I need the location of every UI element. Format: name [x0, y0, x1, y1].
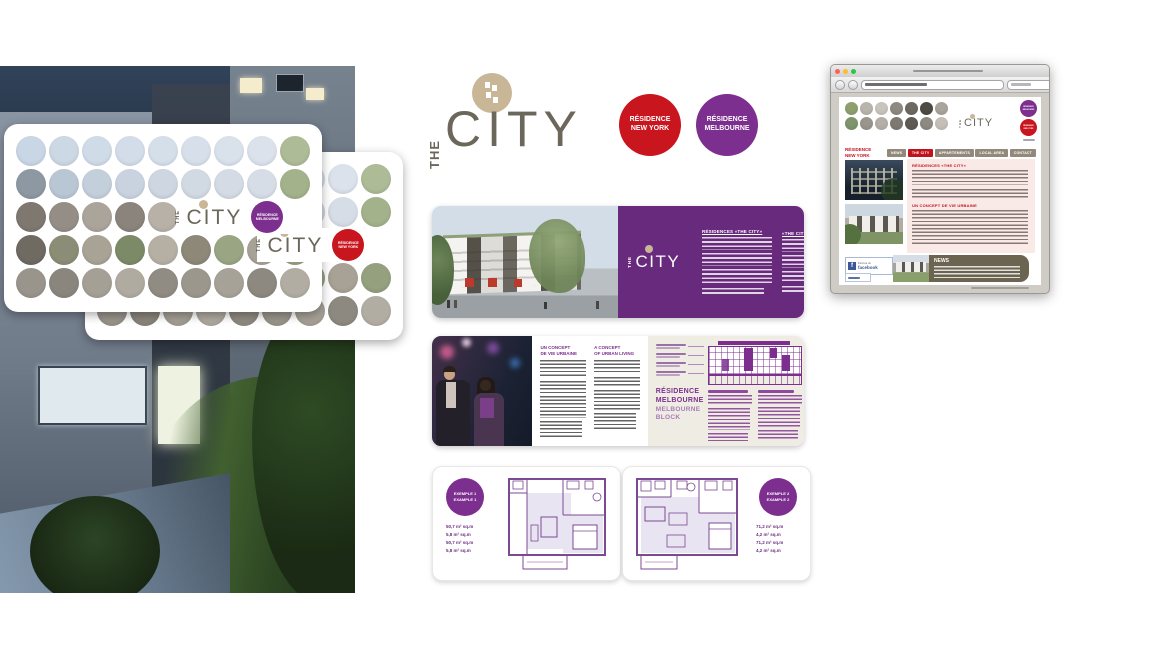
floorplan-drawing — [501, 473, 613, 575]
facebook-like-button[interactable] — [845, 273, 871, 282]
forward-button[interactable] — [848, 80, 858, 90]
building-rendering — [432, 206, 618, 318]
logo-the: THE — [257, 238, 263, 252]
text-lines — [594, 377, 640, 387]
column-heading: «THE CITY» RESIDENCES — [782, 231, 804, 236]
floor-label — [656, 344, 704, 349]
nav-tab-news[interactable]: NEWS — [887, 149, 906, 157]
text-lines — [540, 381, 586, 393]
text-lines — [594, 360, 640, 374]
spec-row: 71,2 m² sq.m — [756, 540, 783, 545]
bokeh-light — [510, 358, 520, 368]
photo-circle — [181, 235, 211, 265]
site-heading-1: RÉSIDENCES «THE CITY» — [912, 163, 1030, 168]
card-logo-block: THE CITY RÉSIDENCEMELBOURNE — [176, 200, 310, 234]
floorplan-card-1: EXEMPLE 1EXAMPLE 1 50,7 m² sq.m 5,8 m² s… — [432, 466, 621, 581]
logo-city: CITY — [445, 104, 583, 154]
logo-gold-circle-icon — [970, 114, 975, 119]
concept-column-fr: UN CONCEPT DE VIE URBAINE — [540, 345, 586, 437]
close-button[interactable] — [835, 69, 840, 74]
photo-circle — [361, 197, 391, 227]
text-lines — [912, 210, 1028, 244]
photo-circle — [935, 102, 948, 115]
photo-circle — [49, 202, 79, 232]
text-lines — [702, 253, 772, 266]
photo-circle — [890, 102, 903, 115]
purple-intro-panel: THE CITY RÉSIDENCES «THE CITY» «THE CITY… — [618, 206, 804, 318]
photo-circle — [920, 117, 933, 130]
photo-circle — [82, 202, 112, 232]
facebook-icon: f — [848, 262, 856, 270]
text-lines — [702, 288, 764, 295]
window-title-text — [913, 70, 983, 73]
melbourne-panel: RÉSIDENCEMELBOURNE MELBOURNEBLOCK — [648, 336, 804, 446]
photo-circle — [328, 296, 358, 326]
photo-circle — [214, 268, 244, 298]
photo-circle — [82, 136, 112, 166]
card-residence-melbourne: THE CITY RÉSIDENCEMELBOURNE — [4, 124, 322, 312]
site-content-panel: RÉSIDENCES «THE CITY» UN CONCEPT DE VIE … — [907, 159, 1035, 253]
photo-circle — [845, 102, 858, 115]
brochure-inner-spread: UN CONCEPT DE VIE URBAINE A CONCEPT OF U… — [432, 336, 804, 446]
photo-circle — [920, 102, 933, 115]
news-box[interactable]: NEWS — [929, 255, 1029, 282]
badge-melbourne: RÉSIDENCEMELBOURNE — [696, 94, 758, 156]
photo-circle — [328, 164, 358, 194]
presentation-board: THE CITY RÉSIDENCENEW YORK THE CITY RÉSI… — [0, 0, 1170, 658]
search-field[interactable] — [1007, 80, 1050, 90]
text-lines — [758, 430, 798, 439]
logo-city: CITY — [187, 207, 243, 228]
photo-circle — [875, 102, 888, 115]
melbourne-title: RÉSIDENCEMELBOURNE MELBOURNEBLOCK — [656, 388, 704, 422]
back-button[interactable] — [835, 80, 845, 90]
photo-circle — [860, 102, 873, 115]
man-hair — [443, 366, 456, 372]
elevation-filled-windows — [722, 359, 729, 371]
spec-row: 5,8 m² sq.m — [446, 532, 473, 537]
news-thumbnail[interactable] — [893, 255, 929, 282]
example-badge: EXEMPLE 1EXAMPLE 1 — [446, 478, 484, 516]
floor-labels — [656, 344, 704, 380]
photo-circle — [875, 117, 888, 130]
spec-row: 4,2 m² sq.m — [756, 532, 783, 537]
floorplan-specs: 71,2 m² sq.m 4,2 m² sq.m 71,2 m² sq.m 4,… — [756, 524, 783, 556]
column-heading: RÉSIDENCES «THE CITY» — [702, 229, 772, 234]
site-image-day[interactable] — [845, 204, 903, 244]
man-shirt — [446, 382, 456, 408]
concept-column-en: A CONCEPT OF URBAN LIVING — [594, 345, 640, 437]
floorplan-card-2: EXEMPLE 2EXAMPLE 2 71,2 m² sq.m 4,2 m² s… — [622, 466, 811, 581]
text-lines — [540, 396, 586, 418]
bokeh-light — [487, 342, 499, 354]
photo-circle — [16, 136, 46, 166]
news-title: NEWS — [934, 258, 1024, 264]
site-header-circles — [845, 102, 948, 132]
text-lines — [540, 421, 581, 437]
window-light — [306, 88, 324, 100]
site-residence-title: RÉSIDENCENEW YORK — [845, 147, 871, 159]
site-lang-link[interactable] — [1023, 139, 1035, 141]
example-badge: EXEMPLE 2EXAMPLE 2 — [759, 478, 797, 516]
window-dark — [276, 74, 304, 92]
photo-circle — [115, 268, 145, 298]
elevation-filled-windows — [744, 348, 753, 371]
column-heading: UN CONCEPT DE VIE URBAINE — [540, 345, 586, 357]
logo-the: THE — [176, 210, 182, 224]
photo-circle — [49, 235, 79, 265]
bokeh-light — [440, 345, 454, 359]
photo-circle — [905, 117, 918, 130]
floorplan-specs: 50,7 m² sq.m 5,8 m² sq.m 50,7 m² sq.m 5,… — [446, 524, 473, 556]
logo-city: CITY — [964, 118, 993, 129]
spec-column-en — [758, 390, 802, 439]
photo-circle — [16, 202, 46, 232]
nav-tab-appartements[interactable]: APPARTEMENTS — [935, 149, 974, 157]
text-lines — [702, 237, 772, 250]
browser-titlebar[interactable] — [831, 65, 1050, 77]
photo-circle — [148, 202, 178, 232]
photo-circle — [280, 169, 310, 199]
photo-circle — [181, 268, 211, 298]
text-lines — [594, 413, 636, 431]
bokeh-light — [462, 338, 471, 347]
text-lines — [702, 269, 772, 285]
photo-circle — [214, 235, 244, 265]
elevation-filled-windows — [782, 355, 790, 371]
photo-circle — [16, 169, 46, 199]
text-lines — [540, 360, 586, 378]
browser-window: THE CITY RÉSIDENCEMELBOURNE RÉSIDENCENEW… — [830, 64, 1050, 294]
couple-photo — [432, 336, 532, 446]
pedestrian — [544, 302, 547, 309]
photo-circle — [845, 117, 858, 130]
site-badge-new-york[interactable]: RÉSIDENCENEW YORK — [1020, 119, 1037, 136]
photo-circle — [280, 268, 310, 298]
floor-label — [656, 371, 704, 376]
floor-label — [656, 353, 704, 358]
brochure-cover-spread: THE CITY RÉSIDENCES «THE CITY» «THE CITY… — [432, 206, 804, 318]
photo-circle — [115, 136, 145, 166]
text-lines — [708, 395, 752, 405]
pedestrian — [447, 300, 450, 308]
window-glass-wall — [38, 366, 147, 425]
photo-circle — [49, 136, 79, 166]
text-lines — [594, 390, 640, 410]
site-heading-2: UN CONCEPT DE VIE URBAINE — [912, 203, 1030, 208]
photo-circle — [115, 202, 145, 232]
nav-tab-contact[interactable]: CONTACT — [1010, 149, 1036, 157]
logo-city: CITY — [268, 235, 324, 256]
photo-circle — [49, 268, 79, 298]
text-lines — [782, 271, 804, 283]
photo-circle — [148, 268, 178, 298]
photo-circle — [247, 169, 277, 199]
photo-circle — [361, 263, 391, 293]
site-logo[interactable]: THE CITY — [959, 118, 993, 129]
photo-circle — [328, 197, 358, 227]
photo-circle — [935, 117, 948, 130]
photo-circle — [16, 268, 46, 298]
photo-circle — [181, 169, 211, 199]
zoom-button[interactable] — [851, 69, 856, 74]
spec-column-fr — [708, 390, 752, 441]
photo-circle — [214, 169, 244, 199]
logo-the: THE — [628, 256, 633, 268]
building-strip — [896, 262, 926, 272]
website-page: THE CITY RÉSIDENCEMELBOURNE RÉSIDENCENEW… — [839, 97, 1041, 285]
nav-tab-the-city[interactable]: THE CITY — [908, 149, 934, 157]
address-bar[interactable] — [861, 80, 1004, 90]
photo-circle — [148, 136, 178, 166]
intro-column-en: «THE CITY» RESIDENCES — [782, 231, 804, 294]
site-image-night[interactable] — [845, 160, 903, 200]
text-lines — [782, 286, 804, 294]
photo-circle — [280, 136, 310, 166]
photo-circle — [247, 268, 277, 298]
logo-gold-circle-icon — [199, 200, 208, 209]
column-heading-line — [708, 390, 748, 393]
logo-city: CITY — [636, 252, 681, 272]
logo-the: THE — [959, 119, 962, 128]
pedestrian — [596, 301, 599, 309]
photo-circle — [361, 164, 391, 194]
elevation-drawing — [708, 341, 800, 385]
spec-row: 5,8 m² sq.m — [446, 548, 473, 553]
window-light — [240, 78, 262, 93]
elevation-ground-floor — [708, 375, 802, 385]
floorplan-drawing — [631, 473, 743, 575]
photo-circle — [905, 102, 918, 115]
badge-melbourne: RÉSIDENCEMELBOURNE — [251, 201, 283, 233]
text-lines — [782, 239, 804, 252]
site-nav: NEWSTHE CITYAPPARTEMENTSLOCAL AREACONTAC… — [887, 149, 1036, 157]
photo-circle — [890, 117, 903, 130]
concept-text: UN CONCEPT DE VIE URBAINE A CONCEPT OF U… — [532, 336, 647, 446]
pedestrian — [454, 300, 457, 308]
text-lines — [708, 433, 748, 441]
elevation-filled-windows — [770, 348, 777, 358]
photo-circle — [247, 136, 277, 166]
floor-label — [656, 362, 704, 367]
spec-row: 71,2 m² sq.m — [756, 524, 783, 529]
photo-circle — [148, 235, 178, 265]
photo-circle — [328, 263, 358, 293]
photo-circle — [181, 136, 211, 166]
nav-tab-local-area[interactable]: LOCAL AREA — [975, 149, 1008, 157]
spec-row: 4,2 m² sq.m — [756, 548, 783, 553]
badge-new-york: RÉSIDENCENEW YORK — [619, 94, 681, 156]
text-lines — [708, 408, 750, 430]
photo-circle — [361, 296, 391, 326]
elevation-roof — [718, 341, 790, 345]
storefront-red — [514, 279, 522, 287]
minimize-button[interactable] — [843, 69, 848, 74]
storefront-red — [488, 278, 497, 287]
photo-circle — [148, 169, 178, 199]
photo-circle — [115, 169, 145, 199]
photo-circle — [16, 235, 46, 265]
spec-row: 50,7 m² sq.m — [446, 524, 473, 529]
tree — [881, 178, 903, 200]
text-lines — [758, 407, 800, 427]
badge-new-york: RÉSIDENCENEW YORK — [332, 229, 364, 261]
photo-circle — [82, 235, 112, 265]
spec-row: 50,7 m² sq.m — [446, 540, 473, 545]
site-copyright — [971, 287, 1029, 289]
photo-circle — [82, 169, 112, 199]
storefront-red — [465, 278, 474, 287]
site-badge-melbourne[interactable]: RÉSIDENCEMELBOURNE — [1020, 100, 1037, 117]
column-heading: A CONCEPT OF URBAN LIVING — [594, 345, 640, 357]
text-lines — [912, 189, 1028, 198]
logo-the: THE — [428, 121, 441, 169]
text-lines — [912, 170, 1028, 185]
logo-gold-circle-icon — [645, 245, 653, 253]
column-heading-line — [758, 390, 794, 393]
photo-circle — [82, 268, 112, 298]
panel-logo: THE CITY — [628, 252, 692, 272]
text-lines — [758, 395, 802, 404]
photo-circle — [115, 235, 145, 265]
text-lines — [934, 266, 1020, 279]
photo-circle — [49, 169, 79, 199]
photo-circle — [860, 117, 873, 130]
photo-circle — [214, 136, 244, 166]
browser-toolbar — [831, 77, 1050, 93]
text-lines — [782, 255, 804, 268]
woman-shirt — [480, 398, 494, 418]
intro-column-fr: RÉSIDENCES «THE CITY» — [702, 229, 772, 295]
